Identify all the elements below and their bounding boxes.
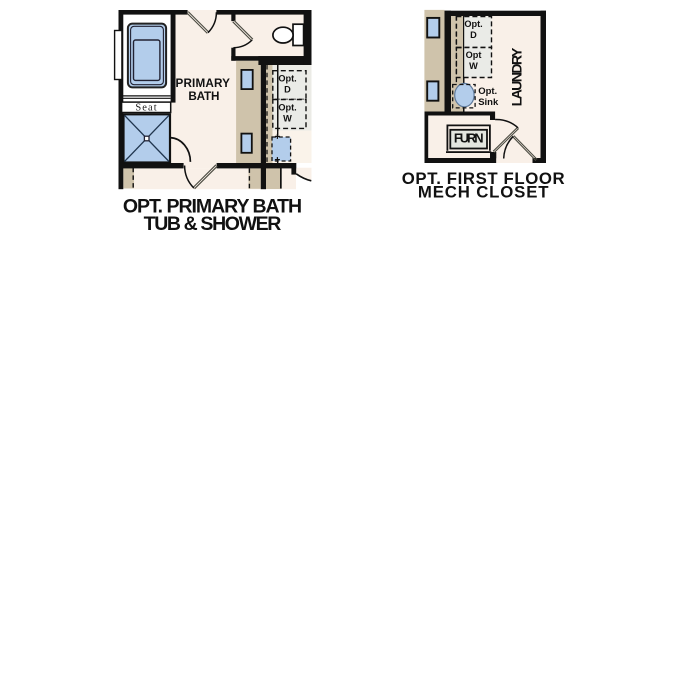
svg-text:TUB & SHOWER: TUB & SHOWER xyxy=(144,213,282,235)
svg-text:PRIMARY: PRIMARY xyxy=(176,77,231,90)
svg-text:FURN: FURN xyxy=(454,130,484,145)
svg-text:LAUNDRY: LAUNDRY xyxy=(510,47,526,106)
svg-text:Opt.: Opt. xyxy=(478,86,497,97)
svg-text:Seat: Seat xyxy=(135,102,156,113)
svg-text:W: W xyxy=(469,61,478,71)
svg-text:Opt.: Opt. xyxy=(278,74,296,84)
svg-text:D: D xyxy=(470,30,477,40)
svg-text:BATH: BATH xyxy=(188,90,219,103)
svg-text:W: W xyxy=(283,114,292,124)
svg-text:MECH CLOSET: MECH CLOSET xyxy=(418,182,549,201)
svg-text:D: D xyxy=(284,85,291,95)
svg-text:Opt.: Opt. xyxy=(464,19,482,29)
svg-text:Sink: Sink xyxy=(478,97,499,108)
svg-text:Opt.: Opt. xyxy=(278,103,296,113)
svg-text:Opt: Opt xyxy=(466,50,482,60)
